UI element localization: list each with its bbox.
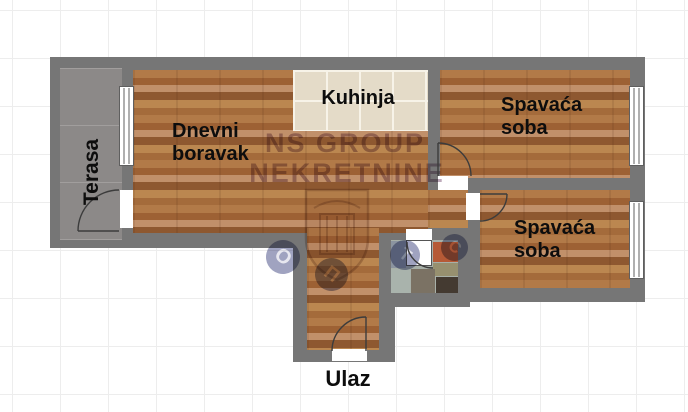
window-bedroom2	[629, 201, 644, 279]
label-bedroom1: Spavaća soba	[501, 94, 582, 140]
label-bedroom1-line2: soba	[501, 117, 582, 140]
window-bedroom1	[629, 86, 644, 166]
bathroom-tile	[436, 277, 458, 293]
door-gap-bedroom2	[466, 193, 480, 220]
door-gap-entrance	[332, 349, 367, 361]
label-kitchen: Kuhinja	[321, 87, 394, 110]
floor-plan: NS GROUP NEKRETNINE О П Т С Terasa Dnevn…	[0, 0, 688, 412]
label-terrace: Terasa	[80, 139, 104, 205]
window-terrace	[119, 86, 134, 166]
bathroom-tile	[411, 269, 435, 293]
label-entrance: Ulaz	[325, 366, 370, 392]
label-bedroom2: Spavaća soba	[514, 217, 595, 263]
watermark-line1: NS GROUP	[265, 128, 425, 159]
living-room-floor-nook	[428, 190, 468, 228]
bathroom-tile	[433, 263, 458, 276]
label-living-room: Dnevni boravak	[172, 120, 249, 166]
label-living-room-line2: boravak	[172, 143, 249, 166]
bathroom-tile	[391, 269, 410, 293]
door-gap-terrace	[120, 190, 133, 228]
label-bedroom1-line1: Spavaća	[501, 94, 582, 117]
label-bedroom2-line1: Spavaća	[514, 217, 595, 240]
label-bedroom2-line2: soba	[514, 240, 595, 263]
label-living-room-line1: Dnevni	[172, 120, 249, 143]
